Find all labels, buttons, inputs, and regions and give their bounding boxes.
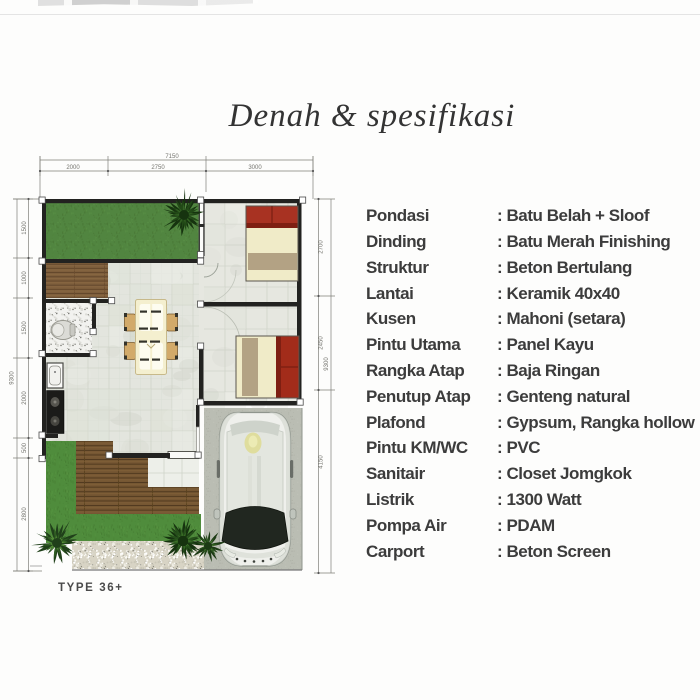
svg-text:2750: 2750 bbox=[151, 165, 165, 171]
svg-text:4150: 4150 bbox=[319, 455, 325, 469]
svg-text:2000: 2000 bbox=[66, 165, 80, 171]
svg-text:2700: 2700 bbox=[319, 240, 325, 254]
svg-text:1000: 1000 bbox=[22, 271, 28, 285]
svg-text:1500: 1500 bbox=[22, 221, 28, 235]
svg-text:3000: 3000 bbox=[248, 165, 262, 171]
svg-text:9300: 9300 bbox=[10, 371, 16, 385]
svg-text:1500: 1500 bbox=[22, 321, 28, 335]
svg-text:9300: 9300 bbox=[324, 357, 330, 371]
svg-text:500: 500 bbox=[22, 442, 28, 453]
svg-text:2800: 2800 bbox=[22, 507, 28, 521]
svg-text:7150: 7150 bbox=[165, 154, 179, 160]
svg-text:2000: 2000 bbox=[22, 391, 28, 405]
svg-text:2450: 2450 bbox=[319, 336, 325, 350]
